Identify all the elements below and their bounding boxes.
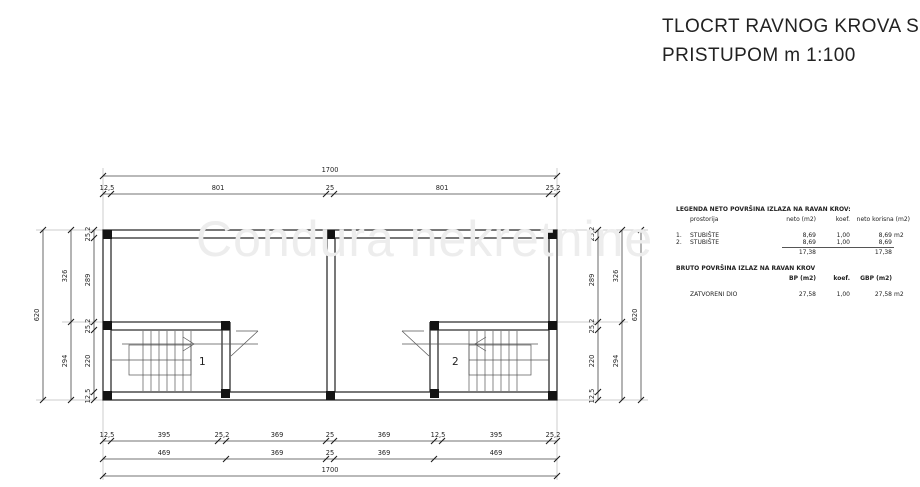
dim-bottom1: 369 — [378, 431, 391, 439]
room-name: STUBIŠTE — [690, 232, 782, 239]
dim-top: 12,5 — [100, 184, 115, 192]
dim-top-total: 1700 — [322, 166, 339, 174]
legend-col-korisna: neto korisna (m2) — [852, 216, 910, 223]
dim-top: 25 — [326, 184, 334, 192]
col-koef2: koef. — [818, 275, 852, 282]
column — [103, 321, 112, 330]
dim-bottom2: 369 — [378, 449, 391, 457]
dim-right: 25,2 — [588, 319, 596, 334]
stair2-label: 2 — [452, 356, 459, 368]
dim-bottom-total: 1700 — [322, 466, 339, 474]
dim-right-mid: 326 — [612, 270, 620, 283]
dim-left: 25,2 — [84, 227, 92, 242]
drawing-title-line1: TLOCRT RAVNOG KROVA S — [662, 12, 919, 41]
legend-header-row: prostorija neto (m2) koef. neto korisna … — [676, 216, 912, 223]
dim-bottom2: 25 — [326, 449, 334, 457]
legend-col-neto: neto (m2) — [782, 216, 818, 223]
dim-top: 801 — [436, 184, 449, 192]
column — [103, 230, 112, 239]
dim-left-total: 620 — [33, 309, 41, 322]
drawing-title: TLOCRT RAVNOG KROVA S PRISTUPOM m 1:100 — [662, 12, 919, 70]
dim-bottom1: 12,5 — [100, 431, 115, 439]
column — [548, 321, 557, 330]
dim-bottom2: 469 — [490, 449, 503, 457]
dim-right: 289 — [588, 274, 596, 287]
dim-left: 12,5 — [84, 389, 92, 404]
drawing-sheet: Condura nekretnine TLOCRT RAVNOG KROVA S… — [0, 0, 920, 487]
dim-bottom1: 12,5 — [431, 431, 446, 439]
dim-bottom1: 25,2 — [215, 431, 230, 439]
column — [221, 389, 230, 398]
legend-row-2: 2. STUBIŠTE 8,69 1,00 8,69 — [676, 239, 912, 246]
bruto-title: BRUTO POVRŠINA IZLAZ NA RAVAN KROV — [676, 265, 912, 272]
legend-col-prostorija: prostorija — [690, 216, 782, 223]
stair2-door-swing — [402, 331, 429, 356]
dim-left: 25,2 — [84, 319, 92, 334]
legend-title: LEGENDA NETO POVRŠINA IZLAZA NA RAVAN KR… — [676, 206, 912, 213]
dim-top: 25,2 — [546, 184, 561, 192]
col-bp: BP (m2) — [782, 275, 818, 282]
legend-total-row: 17,38 17,38 — [676, 249, 912, 256]
dim-bottom1: 395 — [490, 431, 503, 439]
dim-bottom2: 469 — [158, 449, 171, 457]
bruto-name: ZATVORENI DIO — [690, 291, 782, 298]
dim-left: 220 — [84, 355, 92, 368]
watermark-text: Condura nekretnine — [196, 210, 653, 268]
dim-bottom2: 369 — [271, 449, 284, 457]
stair1-label: 1 — [199, 356, 206, 368]
dim-bottom1: 25 — [326, 431, 334, 439]
column — [103, 391, 112, 400]
staircase-2 — [402, 331, 549, 391]
legend-table: LEGENDA NETO POVRŠINA IZLAZA NA RAVAN KR… — [676, 206, 912, 298]
col-gbp: GBP (m2) — [852, 275, 894, 282]
dim-left: 289 — [84, 274, 92, 287]
column — [430, 321, 439, 330]
legend-row-1: 1. STUBIŠTE 8,69 1,00 8,69 m2 — [676, 232, 912, 239]
dim-top: 801 — [212, 184, 225, 192]
staircase-1 — [111, 331, 258, 391]
column — [221, 321, 230, 330]
bruto-header-row: BP (m2) koef. GBP (m2) — [676, 275, 912, 282]
dim-right: 12,5 — [588, 389, 596, 404]
dim-right: 220 — [588, 355, 596, 368]
dim-bottom1: 369 — [271, 431, 284, 439]
dim-left-mid: 294 — [61, 355, 69, 368]
dim-left-mid: 326 — [61, 270, 69, 283]
stair1-door-swing — [231, 331, 258, 356]
column — [548, 391, 557, 400]
column — [326, 391, 335, 400]
total-neto: 17,38 — [782, 249, 818, 256]
legend-col-koef: koef. — [818, 216, 852, 223]
dim-right-total: 620 — [631, 309, 639, 322]
column — [430, 389, 439, 398]
total-korisna: 17,38 — [852, 249, 894, 256]
dim-bottom1: 25,2 — [546, 431, 561, 439]
dim-bottom1: 395 — [158, 431, 171, 439]
drawing-title-line2: PRISTUPOM m 1:100 — [662, 41, 919, 70]
bruto-row: ZATVORENI DIO 27,58 1,00 27,58 m2 — [676, 291, 912, 298]
dim-right-mid: 294 — [612, 355, 620, 368]
room-name: STUBIŠTE — [690, 239, 782, 246]
